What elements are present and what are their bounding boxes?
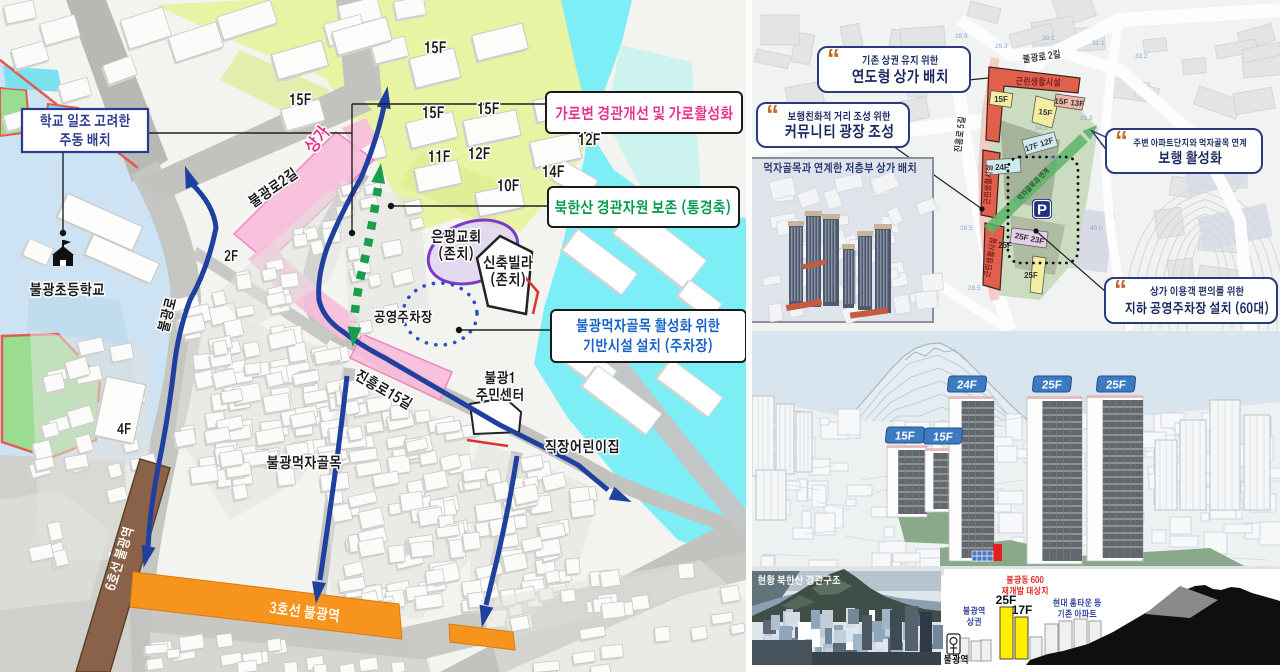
svg-text:33.2: 33.2 — [1135, 53, 1148, 60]
svg-text:15F: 15F — [994, 95, 1008, 104]
svg-text:“: “ — [766, 99, 779, 129]
svg-text:“: “ — [1115, 125, 1128, 155]
svg-text:25F: 25F — [1024, 271, 1038, 280]
svg-text:28.9: 28.9 — [955, 33, 968, 40]
svg-text:31.1: 31.1 — [1092, 40, 1105, 47]
svg-text:24F: 24F — [995, 163, 1009, 172]
svg-text:“: “ — [1114, 274, 1127, 304]
svg-text:30.1: 30.1 — [1042, 35, 1055, 42]
svg-text:28.5: 28.5 — [968, 285, 981, 292]
svg-text:34.5: 34.5 — [1035, 125, 1048, 132]
svg-text:40.0: 40.0 — [1090, 225, 1103, 232]
svg-text:“: “ — [827, 43, 840, 73]
svg-text:P: P — [1037, 202, 1047, 219]
svg-text:15F: 15F — [932, 432, 953, 444]
svg-text:15F: 15F — [894, 431, 915, 443]
svg-text:29.3: 29.3 — [995, 43, 1008, 50]
svg-text:15F: 15F — [1038, 107, 1053, 118]
svg-text:25F: 25F — [1105, 380, 1126, 392]
svg-text:25F: 25F — [1041, 380, 1062, 392]
svg-text:28.5: 28.5 — [960, 225, 973, 232]
svg-text:35.1: 35.1 — [1048, 155, 1061, 162]
svg-text:25F: 25F — [998, 241, 1012, 250]
svg-text:24F: 24F — [956, 380, 977, 392]
svg-text:31.3: 31.3 — [1080, 115, 1093, 122]
svg-text:17F: 17F — [1012, 603, 1033, 617]
